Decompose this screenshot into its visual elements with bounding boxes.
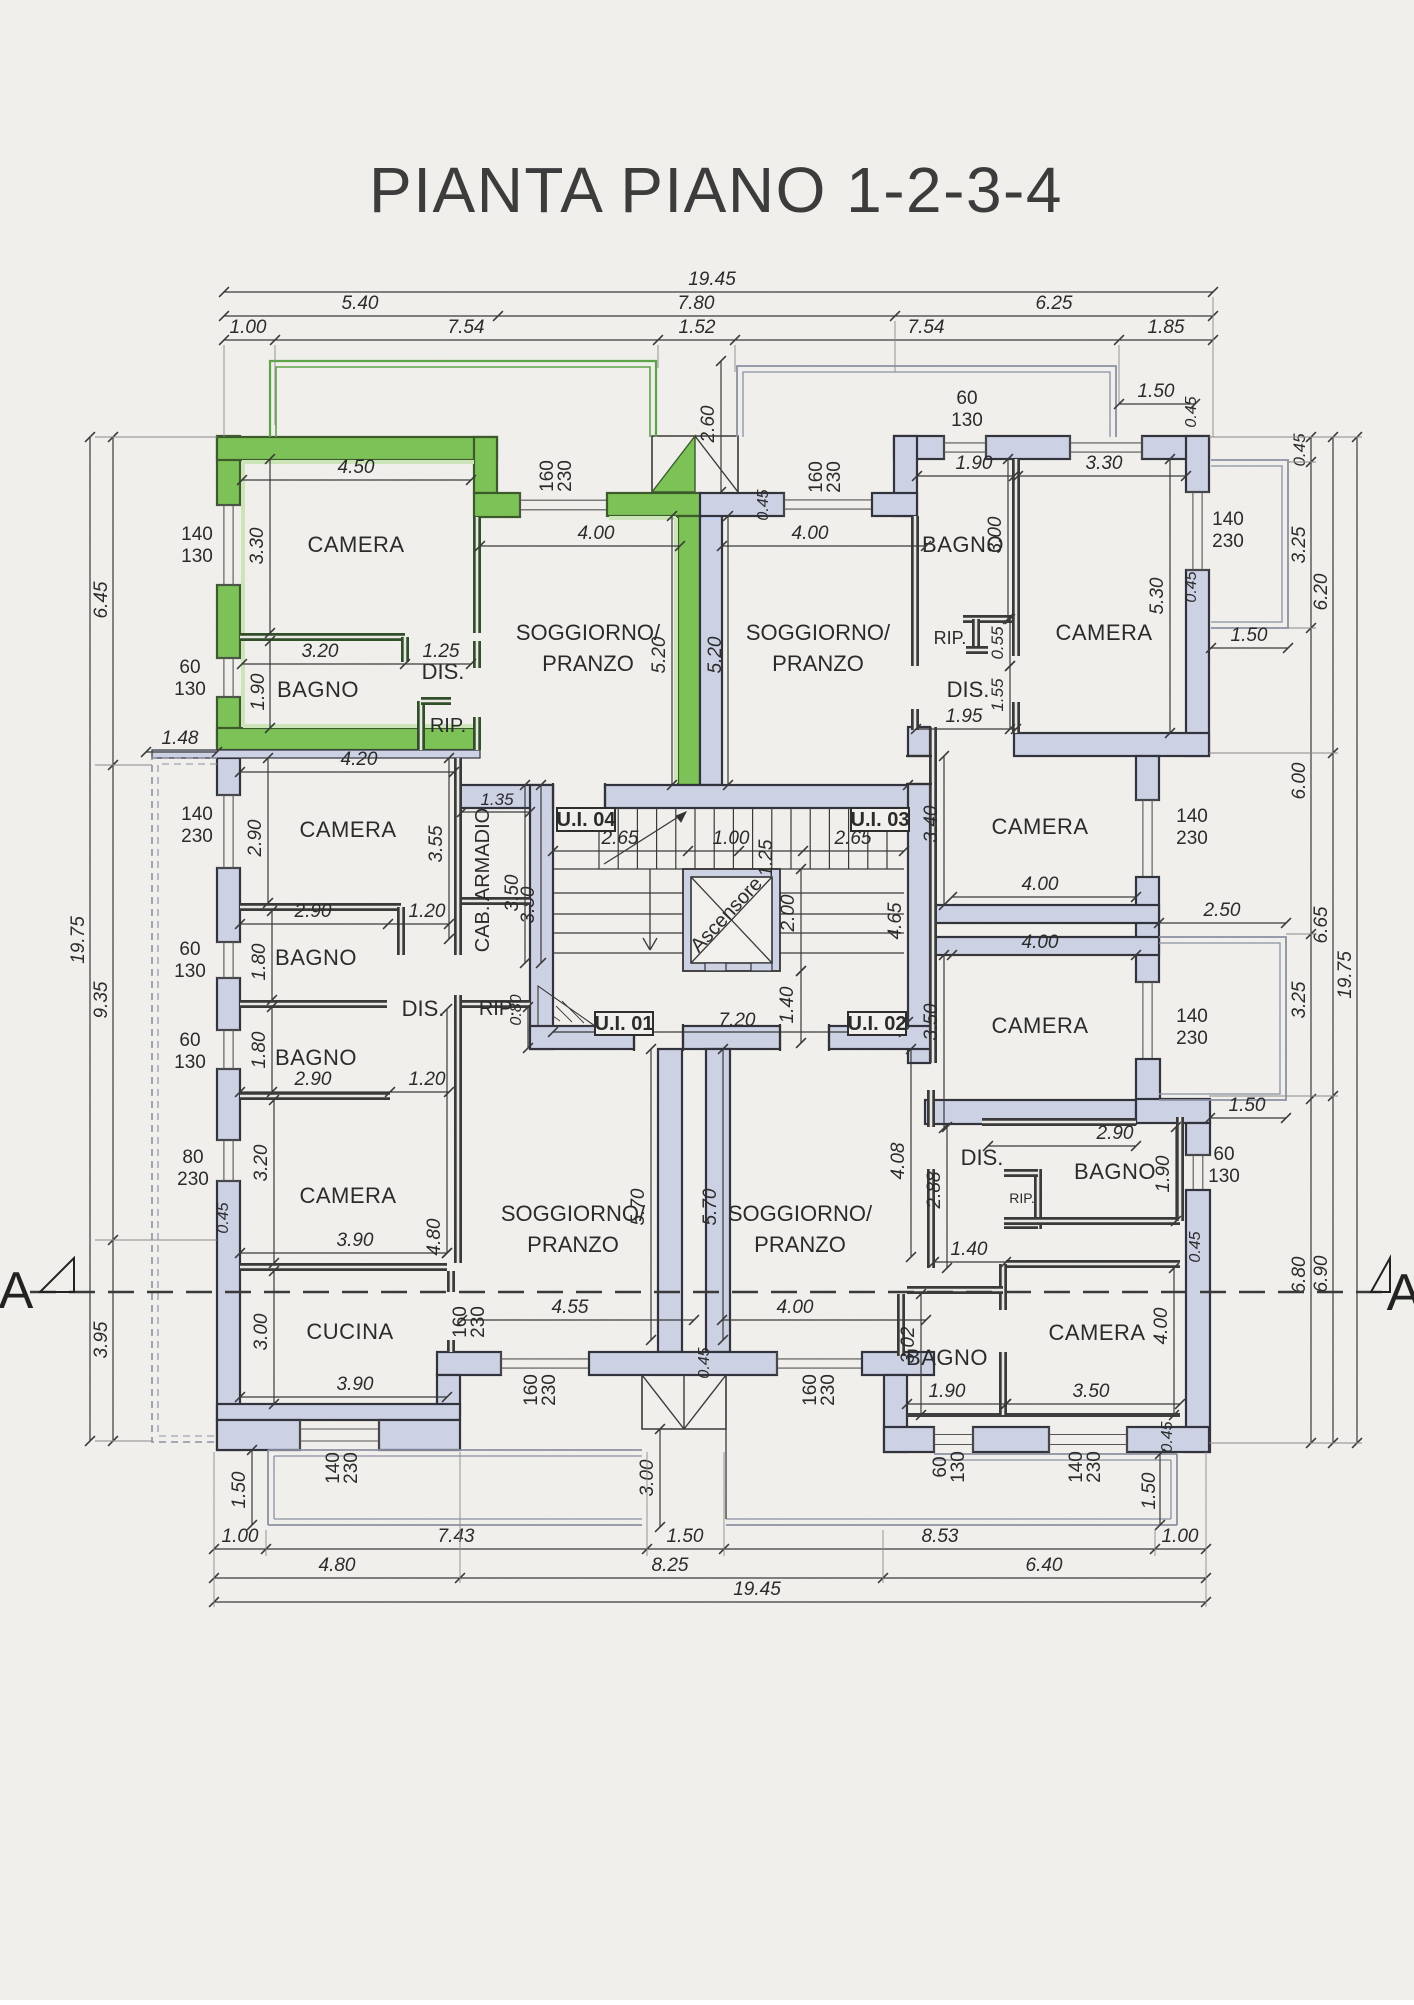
svg-text:BAGNO: BAGNO xyxy=(275,1045,357,1070)
svg-text:3.25: 3.25 xyxy=(1289,981,1310,1018)
svg-text:1.55: 1.55 xyxy=(988,678,1007,712)
svg-text:1.50: 1.50 xyxy=(1139,1472,1160,1509)
svg-text:SOGGIORNO/: SOGGIORNO/ xyxy=(501,1201,646,1226)
svg-text:19.75: 19.75 xyxy=(68,916,89,964)
svg-text:1.25: 1.25 xyxy=(756,839,777,876)
svg-text:130: 130 xyxy=(174,1052,206,1073)
svg-text:1.48: 1.48 xyxy=(162,728,199,749)
svg-text:PRANZO: PRANZO xyxy=(772,651,864,676)
svg-text:6.20: 6.20 xyxy=(1311,573,1332,610)
svg-text:2.88: 2.88 xyxy=(924,1171,945,1209)
svg-text:130: 130 xyxy=(181,546,213,567)
svg-text:6.45: 6.45 xyxy=(91,581,112,618)
svg-text:230: 230 xyxy=(1212,531,1244,552)
svg-text:140: 140 xyxy=(181,524,213,545)
svg-text:60: 60 xyxy=(179,657,200,678)
svg-text:130: 130 xyxy=(948,1451,969,1483)
svg-text:1.00: 1.00 xyxy=(713,828,750,849)
svg-text:RIP.: RIP. xyxy=(1009,1190,1034,1206)
svg-text:4.50: 4.50 xyxy=(338,457,375,478)
svg-text:3.50: 3.50 xyxy=(502,874,523,911)
svg-text:1.50: 1.50 xyxy=(229,1471,250,1508)
svg-text:2.90: 2.90 xyxy=(1096,1123,1134,1144)
svg-text:19.45: 19.45 xyxy=(733,1579,781,1600)
svg-text:1.90: 1.90 xyxy=(1153,1155,1174,1192)
svg-text:CAMERA: CAMERA xyxy=(991,814,1088,839)
svg-text:3.90: 3.90 xyxy=(337,1374,374,1395)
svg-text:6.25: 6.25 xyxy=(1036,293,1073,314)
svg-text:4.08: 4.08 xyxy=(888,1142,909,1179)
svg-text:5.70: 5.70 xyxy=(628,1188,649,1225)
svg-text:3.50: 3.50 xyxy=(1073,1381,1110,1402)
svg-text:A: A xyxy=(0,1262,34,1320)
svg-text:3.90: 3.90 xyxy=(337,1230,374,1251)
svg-text:1.40: 1.40 xyxy=(777,986,798,1023)
svg-text:1.40: 1.40 xyxy=(951,1239,988,1260)
svg-text:140: 140 xyxy=(1176,1006,1208,1027)
svg-text:1.90: 1.90 xyxy=(929,1381,966,1402)
svg-text:140: 140 xyxy=(181,804,213,825)
svg-text:4.00: 4.00 xyxy=(578,523,615,544)
svg-text:6.90: 6.90 xyxy=(1311,1255,1332,1292)
svg-text:1.50: 1.50 xyxy=(667,1526,704,1547)
svg-text:SOGGIORNO/: SOGGIORNO/ xyxy=(746,620,891,645)
svg-text:5.30: 5.30 xyxy=(1147,577,1168,614)
svg-text:PRANZO: PRANZO xyxy=(754,1232,846,1257)
svg-text:DIS.: DIS. xyxy=(422,659,465,684)
svg-text:4.20: 4.20 xyxy=(341,749,378,770)
svg-text:2.00: 2.00 xyxy=(778,894,799,932)
svg-text:230: 230 xyxy=(341,1452,362,1484)
svg-text:60: 60 xyxy=(179,1030,200,1051)
svg-text:0.55: 0.55 xyxy=(988,626,1007,660)
svg-text:BAGNO: BAGNO xyxy=(1074,1159,1156,1184)
svg-text:1.20: 1.20 xyxy=(409,901,446,922)
svg-text:7.80: 7.80 xyxy=(678,293,715,314)
svg-text:60: 60 xyxy=(1213,1144,1234,1165)
svg-text:230: 230 xyxy=(1176,828,1208,849)
svg-text:9.35: 9.35 xyxy=(91,981,112,1018)
svg-text:3.55: 3.55 xyxy=(426,825,447,862)
svg-text:5.20: 5.20 xyxy=(705,636,726,673)
svg-text:140: 140 xyxy=(1176,806,1208,827)
svg-text:SOGGIORNO/: SOGGIORNO/ xyxy=(728,1201,873,1226)
svg-text:230: 230 xyxy=(818,1374,839,1406)
svg-text:4.80: 4.80 xyxy=(319,1555,356,1576)
svg-text:3.25: 3.25 xyxy=(1289,526,1310,563)
svg-text:230: 230 xyxy=(1084,1451,1105,1483)
svg-text:0.45: 0.45 xyxy=(755,489,772,520)
svg-text:60: 60 xyxy=(179,939,200,960)
svg-text:6.00: 6.00 xyxy=(1289,762,1310,799)
svg-text:230: 230 xyxy=(555,460,576,492)
svg-text:7.43: 7.43 xyxy=(438,1526,475,1547)
svg-text:140: 140 xyxy=(1212,509,1244,530)
svg-text:8.53: 8.53 xyxy=(922,1526,959,1547)
svg-text:3.95: 3.95 xyxy=(91,1321,112,1358)
svg-text:8.25: 8.25 xyxy=(652,1555,689,1576)
svg-text:0.45: 0.45 xyxy=(215,1202,232,1233)
svg-text:4.00: 4.00 xyxy=(1151,1307,1172,1344)
svg-text:7.54: 7.54 xyxy=(448,317,485,338)
svg-text:CAMERA: CAMERA xyxy=(1048,1320,1145,1345)
svg-text:SOGGIORNO/: SOGGIORNO/ xyxy=(516,620,661,645)
svg-text:0.45: 0.45 xyxy=(696,1347,713,1378)
svg-text:3.00: 3.00 xyxy=(251,1313,272,1350)
svg-text:CAMERA: CAMERA xyxy=(991,1013,1088,1038)
svg-text:3.20: 3.20 xyxy=(302,641,339,662)
svg-text:RIP.: RIP. xyxy=(430,715,466,737)
svg-text:6.80: 6.80 xyxy=(1289,1256,1310,1293)
svg-text:1.90: 1.90 xyxy=(248,673,269,710)
svg-text:CAMERA: CAMERA xyxy=(307,532,404,557)
svg-text:3.50: 3.50 xyxy=(921,1003,942,1040)
svg-text:3.00: 3.00 xyxy=(985,516,1006,553)
svg-text:4.80: 4.80 xyxy=(424,1218,445,1255)
svg-text:PRANZO: PRANZO xyxy=(542,651,634,676)
svg-text:CUCINA: CUCINA xyxy=(306,1319,393,1344)
svg-text:2.90: 2.90 xyxy=(245,819,266,857)
svg-text:1.85: 1.85 xyxy=(1148,317,1185,338)
svg-text:1.25: 1.25 xyxy=(423,641,460,662)
svg-text:2.90: 2.90 xyxy=(294,1069,332,1090)
svg-text:1.35: 1.35 xyxy=(480,790,514,809)
svg-text:130: 130 xyxy=(174,961,206,982)
svg-text:PIANTA PIANO 1-2-3-4: PIANTA PIANO 1-2-3-4 xyxy=(369,154,1063,226)
svg-text:60: 60 xyxy=(956,388,977,409)
svg-text:230: 230 xyxy=(824,461,845,493)
svg-text:1.50: 1.50 xyxy=(1229,1095,1266,1116)
svg-text:CAB. ARMADIO: CAB. ARMADIO xyxy=(472,808,494,952)
svg-text:3.30: 3.30 xyxy=(247,527,268,564)
svg-text:5.20: 5.20 xyxy=(649,636,670,673)
svg-text:1.52: 1.52 xyxy=(679,317,716,338)
svg-text:DIS.: DIS. xyxy=(947,677,990,702)
svg-text:2.90: 2.90 xyxy=(294,901,332,922)
svg-text:4.00: 4.00 xyxy=(792,523,829,544)
svg-text:CAMERA: CAMERA xyxy=(299,817,396,842)
svg-text:230: 230 xyxy=(177,1169,209,1190)
svg-text:7.54: 7.54 xyxy=(908,317,945,338)
svg-text:3.20: 3.20 xyxy=(251,1144,272,1181)
svg-text:0.45: 0.45 xyxy=(1187,1231,1204,1262)
svg-text:0.45: 0.45 xyxy=(1183,571,1200,602)
svg-text:1.00: 1.00 xyxy=(222,1526,259,1547)
svg-text:5.40: 5.40 xyxy=(342,293,379,314)
svg-text:1.90: 1.90 xyxy=(956,453,993,474)
svg-text:6.40: 6.40 xyxy=(1026,1555,1063,1576)
svg-text:2.50: 2.50 xyxy=(1203,900,1241,921)
svg-text:4.00: 4.00 xyxy=(1022,932,1059,953)
svg-text:5.70: 5.70 xyxy=(700,1188,721,1225)
svg-text:1.95: 1.95 xyxy=(946,706,983,727)
svg-text:4.55: 4.55 xyxy=(552,1297,589,1318)
svg-text:1.20: 1.20 xyxy=(409,1069,446,1090)
svg-text:230: 230 xyxy=(539,1374,560,1406)
svg-text:1.00: 1.00 xyxy=(230,317,267,338)
svg-text:0.45: 0.45 xyxy=(1290,433,1309,467)
svg-text:DIS.: DIS. xyxy=(402,996,445,1021)
svg-text:1.80: 1.80 xyxy=(249,1031,270,1068)
svg-text:4.65: 4.65 xyxy=(885,902,906,939)
svg-text:DIS.: DIS. xyxy=(961,1145,1004,1170)
svg-text:2.60: 2.60 xyxy=(698,405,719,443)
svg-text:CAMERA: CAMERA xyxy=(299,1183,396,1208)
svg-text:130: 130 xyxy=(1208,1166,1240,1187)
svg-text:4.00: 4.00 xyxy=(777,1297,814,1318)
svg-text:1.80: 1.80 xyxy=(249,943,270,980)
svg-text:U.I. 01: U.I. 01 xyxy=(595,1013,654,1035)
svg-text:130: 130 xyxy=(174,679,206,700)
svg-text:A: A xyxy=(1387,1264,1414,1322)
svg-text:U.I. 03: U.I. 03 xyxy=(851,809,910,831)
svg-text:230: 230 xyxy=(1176,1028,1208,1049)
svg-text:BAGNO: BAGNO xyxy=(277,677,359,702)
svg-text:19.75: 19.75 xyxy=(1335,951,1356,999)
svg-text:7.20: 7.20 xyxy=(719,1010,756,1031)
svg-text:3.00: 3.00 xyxy=(637,1459,658,1496)
svg-text:0.80: 0.80 xyxy=(508,994,525,1025)
svg-text:U.I. 04: U.I. 04 xyxy=(557,809,617,831)
svg-text:U.I. 02: U.I. 02 xyxy=(848,1013,907,1035)
svg-text:3.02: 3.02 xyxy=(898,1326,919,1363)
svg-text:80: 80 xyxy=(182,1147,203,1168)
svg-text:1.50: 1.50 xyxy=(1138,381,1175,402)
svg-text:0.45: 0.45 xyxy=(1159,1421,1176,1452)
svg-text:1.50: 1.50 xyxy=(1231,625,1268,646)
svg-text:3.40: 3.40 xyxy=(921,805,942,842)
svg-text:4.00: 4.00 xyxy=(1022,874,1059,895)
svg-text:230: 230 xyxy=(181,826,213,847)
svg-text:1.00: 1.00 xyxy=(1162,1526,1199,1547)
svg-text:6.65: 6.65 xyxy=(1311,906,1332,943)
svg-text:BAGNO: BAGNO xyxy=(275,945,357,970)
svg-text:PRANZO: PRANZO xyxy=(527,1232,619,1257)
svg-text:CAMERA: CAMERA xyxy=(1055,620,1152,645)
svg-text:RIP.: RIP. xyxy=(934,628,967,648)
svg-text:230: 230 xyxy=(468,1306,489,1338)
svg-text:19.45: 19.45 xyxy=(688,269,736,290)
svg-text:3.30: 3.30 xyxy=(1086,453,1123,474)
svg-text:130: 130 xyxy=(951,410,983,431)
